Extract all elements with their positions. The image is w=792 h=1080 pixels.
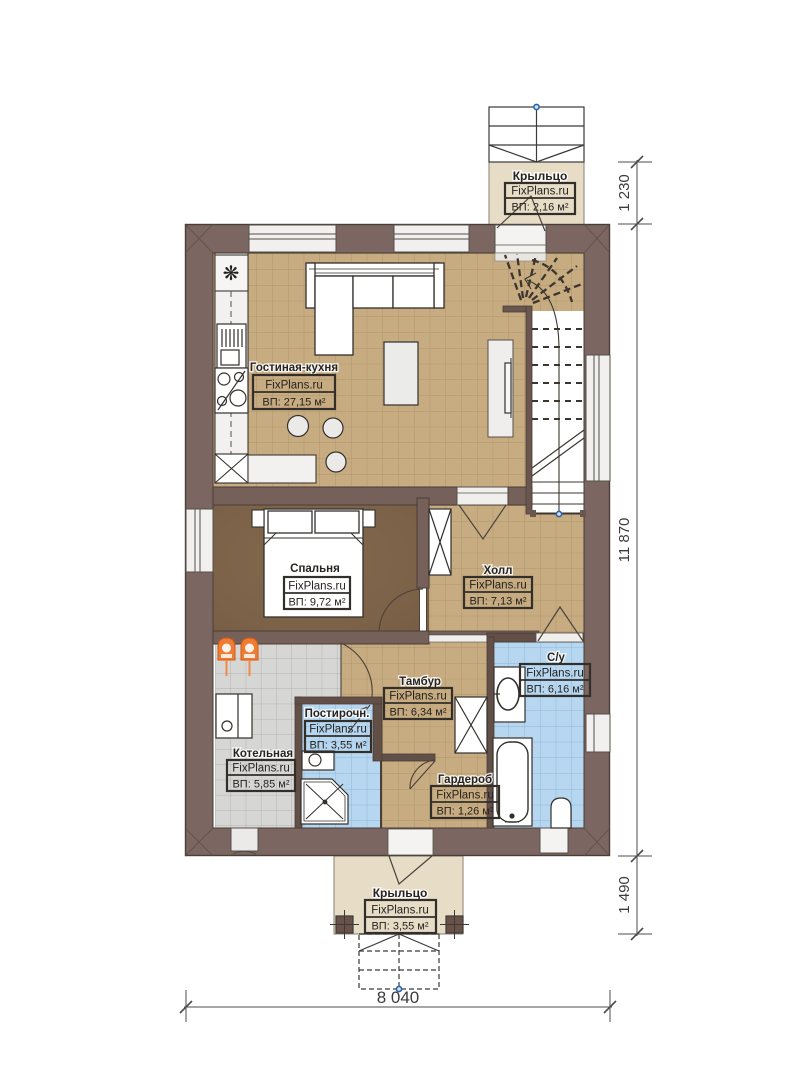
svg-text:11 870: 11 870 — [616, 518, 633, 563]
svg-text:ВП: 7,13 м²: ВП: 7,13 м² — [469, 596, 526, 608]
svg-text:Гостиная-кухня: Гостиная-кухня — [250, 362, 338, 374]
svg-text:FixPlans.ru: FixPlans.ru — [371, 905, 429, 917]
svg-text:Постирочн.: Постирочн. — [305, 708, 370, 720]
svg-text:Спальня: Спальня — [290, 563, 340, 575]
svg-text:ВП: 27,15 м²: ВП: 27,15 м² — [262, 397, 326, 409]
svg-text:FixPlans.ru: FixPlans.ru — [469, 580, 527, 592]
svg-text:ВП: 6,34 м²: ВП: 6,34 м² — [389, 707, 446, 719]
svg-text:ВП: 2,16 м²: ВП: 2,16 м² — [511, 202, 568, 214]
svg-text:1 490: 1 490 — [616, 876, 633, 914]
svg-text:С/у: С/у — [547, 652, 566, 664]
svg-text:Тамбур: Тамбур — [399, 676, 441, 688]
svg-text:FixPlans.ru: FixPlans.ru — [511, 186, 569, 198]
svg-text:ВП: 9,72 м²: ВП: 9,72 м² — [288, 597, 345, 609]
svg-text:Крыльцо: Крыльцо — [373, 886, 428, 900]
svg-text:ВП: 1,26 м²: ВП: 1,26 м² — [436, 806, 493, 818]
svg-text:Гардероб: Гардероб — [438, 774, 492, 786]
svg-text:FixPlans.ru: FixPlans.ru — [265, 380, 323, 392]
svg-text:FixPlans.ru: FixPlans.ru — [309, 724, 367, 736]
svg-text:FixPlans.ru: FixPlans.ru — [436, 790, 494, 802]
svg-text:ВП: 3,55 м²: ВП: 3,55 м² — [309, 740, 366, 752]
svg-text:8 040: 8 040 — [377, 988, 420, 1007]
svg-text:FixPlans.ru: FixPlans.ru — [389, 691, 447, 703]
svg-text:1 230: 1 230 — [616, 174, 633, 212]
svg-text:Холл: Холл — [484, 565, 513, 577]
svg-text:FixPlans.ru: FixPlans.ru — [288, 581, 346, 593]
svg-text:Крыльцо: Крыльцо — [513, 169, 568, 183]
svg-text:ВП: 5,85 м²: ВП: 5,85 м² — [232, 779, 289, 791]
svg-text:ВП: 6,16 м²: ВП: 6,16 м² — [526, 684, 583, 696]
svg-text:ВП: 3,55 м²: ВП: 3,55 м² — [371, 921, 428, 933]
svg-text:FixPlans.ru: FixPlans.ru — [232, 763, 290, 775]
svg-text:FixPlans.ru: FixPlans.ru — [526, 668, 584, 680]
svg-text:❋: ❋ — [223, 263, 240, 285]
svg-text:Котельная: Котельная — [233, 748, 293, 760]
